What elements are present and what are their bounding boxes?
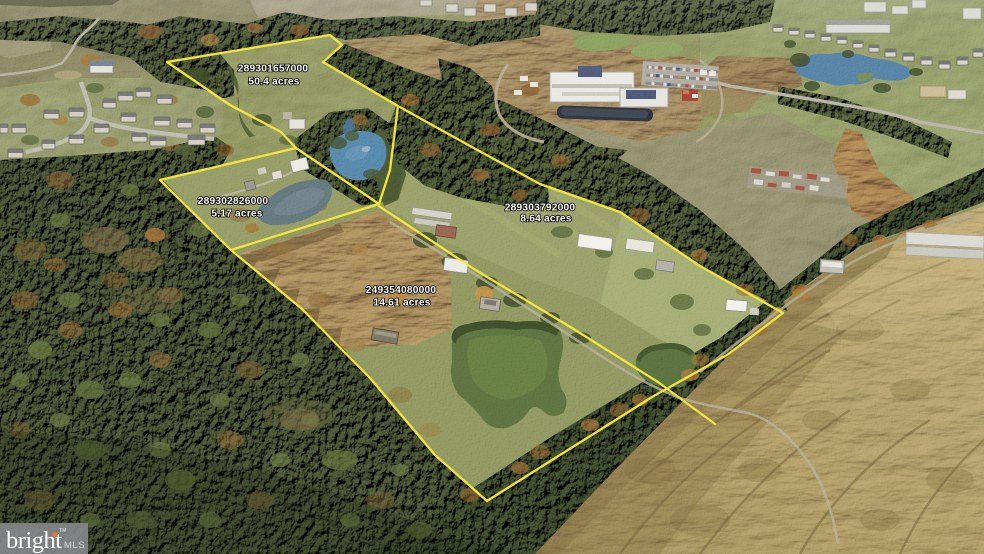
svg-text:8.64 acres: 8.64 acres: [520, 214, 571, 225]
svg-text:289303792000: 289303792000: [505, 203, 576, 214]
svg-text:MLS: MLS: [64, 540, 85, 551]
svg-text:TM: TM: [59, 528, 66, 534]
svg-text:249354080000: 249354080000: [366, 285, 437, 296]
svg-text:289302826000: 289302826000: [198, 196, 269, 207]
svg-text:14.61 acres: 14.61 acres: [373, 298, 430, 309]
svg-text:✱: ✱: [51, 530, 59, 540]
svg-text:5.17 acres: 5.17 acres: [211, 209, 262, 220]
